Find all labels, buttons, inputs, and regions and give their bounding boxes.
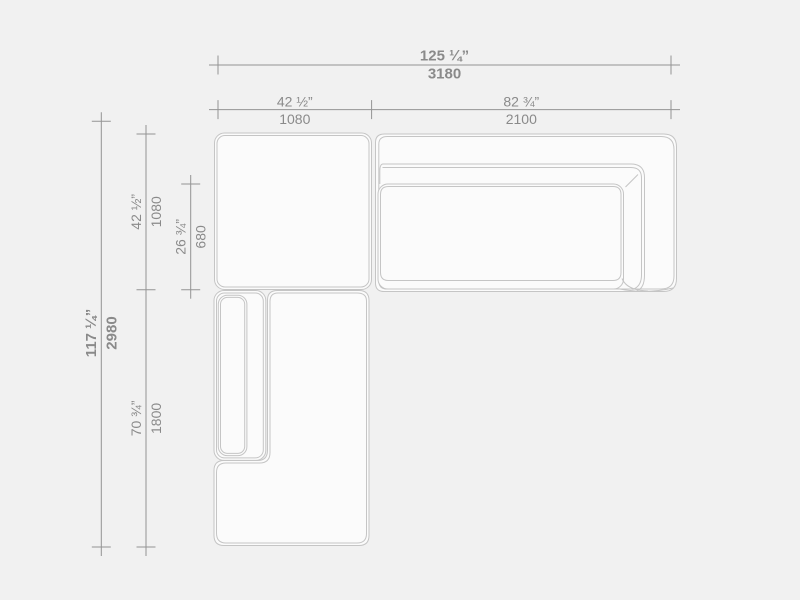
svg-text:1080: 1080: [279, 111, 310, 127]
svg-text:42 ½”: 42 ½”: [128, 194, 144, 230]
svg-text:1080: 1080: [148, 196, 164, 227]
svg-text:2980: 2980: [103, 316, 120, 349]
svg-text:82 ¾”: 82 ¾”: [503, 93, 539, 109]
svg-text:117 ¼”: 117 ¼”: [83, 309, 100, 357]
svg-text:26 ¾”: 26 ¾”: [173, 219, 189, 255]
svg-text:1800: 1800: [148, 403, 164, 434]
svg-text:42 ½”: 42 ½”: [277, 93, 313, 109]
svg-text:680: 680: [193, 225, 209, 249]
svg-text:3180: 3180: [428, 66, 461, 83]
svg-text:70 ¾”: 70 ¾”: [128, 400, 144, 436]
svg-text:125 ¼”: 125 ¼”: [420, 48, 469, 65]
svg-text:2100: 2100: [506, 111, 537, 127]
